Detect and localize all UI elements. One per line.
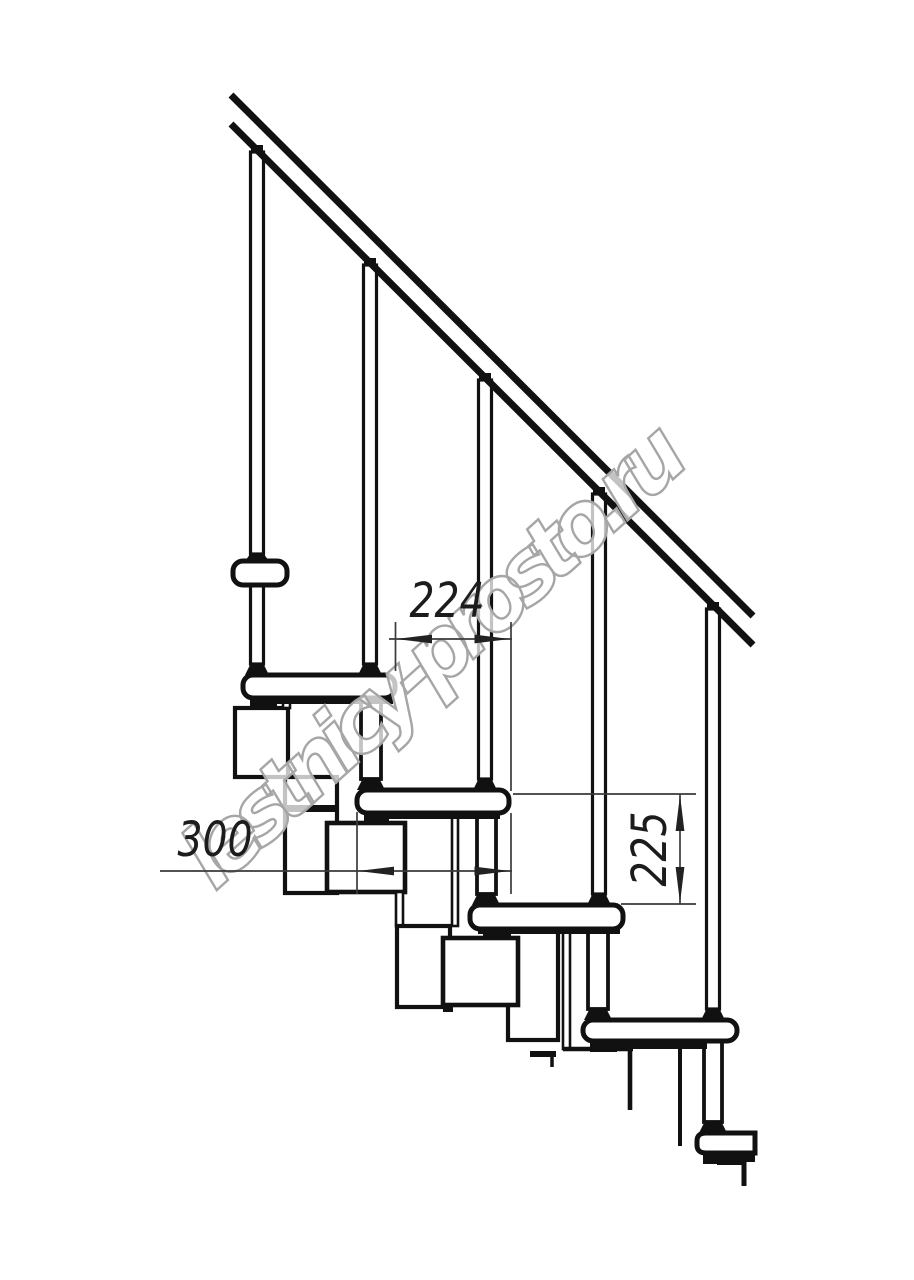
- module-box: [443, 938, 518, 1005]
- baluster-5-rod: [707, 609, 720, 1009]
- tread-2: [357, 790, 509, 813]
- baluster-1-rod-lower: [251, 585, 264, 664]
- tread-3: [470, 905, 623, 929]
- module-plate: [563, 930, 570, 1049]
- module-box: [327, 823, 405, 892]
- module-plate: [396, 892, 403, 926]
- baluster-1-rod: [251, 152, 264, 554]
- dimension-value-going: 224: [409, 573, 484, 629]
- module-plate: [452, 812, 458, 926]
- module-tab: [530, 1051, 556, 1057]
- module-tab: [443, 1004, 453, 1012]
- staircase-drawing: lestnicy-prosto.ru 224 300: [0, 0, 914, 1280]
- tread-5-partial: [697, 1133, 755, 1153]
- support-column: [477, 812, 496, 894]
- dimension-value-rise: 225: [622, 811, 678, 886]
- support-column: [704, 1040, 722, 1122]
- dimension-value-tread-depth: 300: [177, 812, 252, 868]
- lower-structure: [717, 1161, 744, 1186]
- baluster-2-rod: [364, 265, 377, 664]
- tread-4: [583, 1020, 737, 1041]
- support-column: [588, 928, 608, 1009]
- top-collar-tread: [233, 561, 287, 585]
